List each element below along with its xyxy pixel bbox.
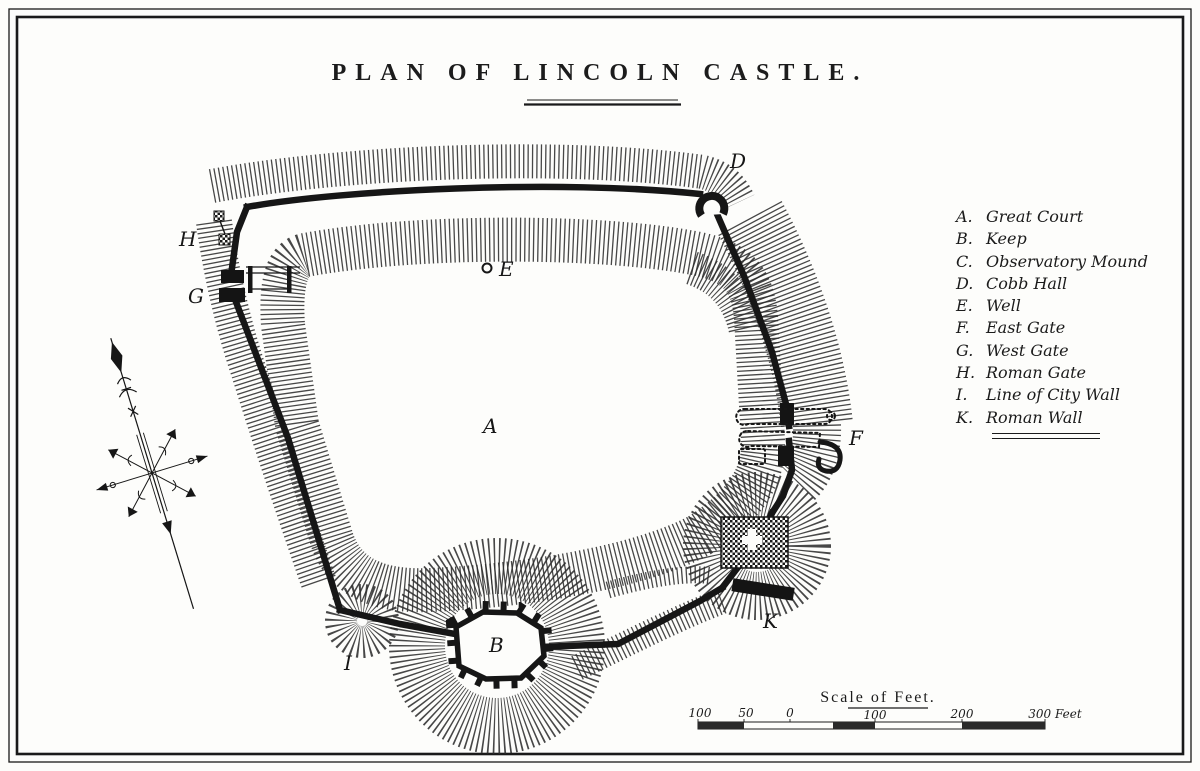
legend-name: Keep xyxy=(986,229,1027,248)
scale-title: Scale of Feet. xyxy=(820,689,936,706)
legend-name: Line of City Wall xyxy=(986,385,1120,404)
label-east-gate: F xyxy=(848,426,864,450)
legend-letter: D. xyxy=(956,274,986,293)
legend-letter: H. xyxy=(956,363,986,382)
legend-name: Cobb Hall xyxy=(986,274,1067,293)
label-west-gate: G xyxy=(188,284,204,308)
legend-item-A: A. Great Court xyxy=(956,207,1176,229)
legend-letter: A. xyxy=(956,207,986,226)
legend: A. Great Court B. Keep C. Observatory Mo… xyxy=(956,207,1176,430)
legend-item-G: G. West Gate xyxy=(956,341,1176,363)
label-roman-gate: H xyxy=(178,227,197,251)
observatory-structure xyxy=(721,517,788,568)
legend-name: East Gate xyxy=(986,318,1065,337)
scale-tick-50: 50 xyxy=(738,706,754,720)
legend-letter: K. xyxy=(956,408,986,427)
label-city-wall: I xyxy=(343,651,353,675)
legend-letter: C. xyxy=(956,252,986,271)
legend-name: West Gate xyxy=(986,341,1069,360)
legend-name: Great Court xyxy=(986,207,1083,226)
label-great-court: A xyxy=(481,414,497,438)
legend-name: Roman Gate xyxy=(986,363,1086,382)
label-keep: B xyxy=(488,633,504,657)
title-rule xyxy=(524,100,681,105)
scale-bar: Scale of Feet. 100 50 0 100 200 300 Feet xyxy=(689,689,1082,729)
compass-rose-icon xyxy=(55,321,249,626)
label-well: E xyxy=(498,257,514,281)
legend-item-F: F. East Gate xyxy=(956,318,1176,340)
well-circle-marker xyxy=(483,264,492,273)
scale-tick-0: 0 xyxy=(786,706,794,720)
legend-letter: I. xyxy=(956,385,986,404)
legend-item-H: H. Roman Gate xyxy=(956,363,1176,385)
label-cobb-hall: D xyxy=(729,149,746,173)
legend-item-D: D. Cobb Hall xyxy=(956,274,1176,296)
legend-name: Roman Wall xyxy=(986,408,1083,427)
legend-name: Observatory Mound xyxy=(986,252,1148,271)
legend-item-I: I. Line of City Wall xyxy=(956,385,1176,407)
engraving-page: A B D E F G H I K Scale of Feet. 100 50 … xyxy=(0,0,1200,771)
scale-tick-300: 300 Feet xyxy=(1028,707,1082,721)
legend-letter: F. xyxy=(956,318,986,337)
legend-item-B: B. Keep xyxy=(956,229,1176,251)
legend-letter: E. xyxy=(956,296,986,315)
scale-tick-200: 200 xyxy=(950,707,974,721)
legend-item-C: C. Observatory Mound xyxy=(956,252,1176,274)
legend-letter: B. xyxy=(956,229,986,248)
legend-rule xyxy=(992,433,1100,439)
scale-tick-100L: 100 xyxy=(689,706,712,720)
cobb-hall-tower xyxy=(699,196,724,216)
legend-item-E: E. Well xyxy=(956,296,1176,318)
label-roman-wall: K xyxy=(762,609,779,633)
legend-letter: G. xyxy=(956,341,986,360)
page-title: PLAN OF LINCOLN CASTLE. xyxy=(0,60,1200,87)
legend-name: Well xyxy=(986,296,1021,315)
legend-item-K: K. Roman Wall xyxy=(956,408,1176,430)
